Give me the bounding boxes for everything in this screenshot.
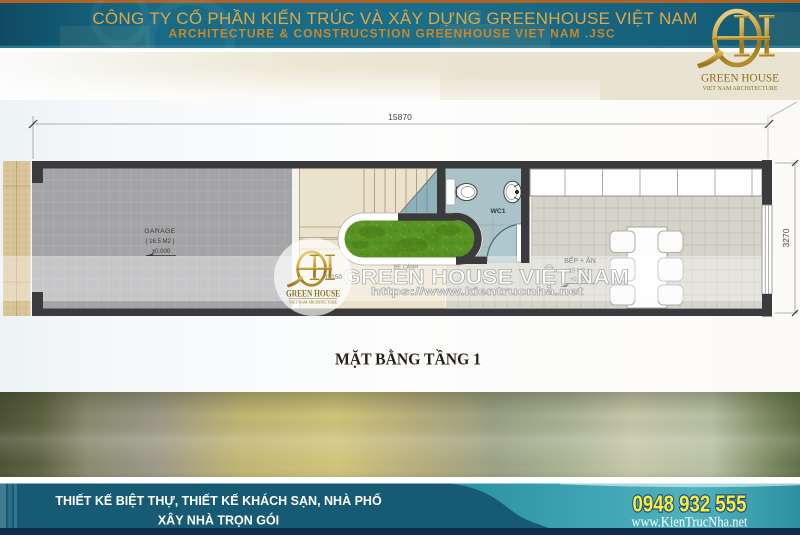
svg-text:3270: 3270 (781, 228, 791, 247)
svg-text:www.KienTrucNha.net: www.KienTrucNha.net (632, 515, 748, 531)
svg-text:15870: 15870 (388, 112, 412, 122)
svg-text:0.150: 0.150 (326, 274, 343, 281)
svg-text:XÂY NHÀ TRỌN GÓI: XÂY NHÀ TRỌN GÓI (158, 513, 279, 528)
svg-text:GARAGE: GARAGE (144, 228, 176, 235)
svg-text:±0.000: ±0.000 (152, 249, 171, 255)
svg-text:MẶT BẰNG TẦNG 1: MẶT BẰNG TẦNG 1 (335, 350, 481, 369)
svg-text:VIET NAM ARCHITECTURE: VIET NAM ARCHITECTURE (703, 85, 778, 92)
svg-text:CÔNG TY CỔ PHẦN KIẾN TRÚC VÀ X: CÔNG TY CỔ PHẦN KIẾN TRÚC VÀ XÂY DỰNG GR… (92, 9, 697, 28)
svg-text:ARCHITECTURE & CONSTRUCSTION G: ARCHITECTURE & CONSTRUCSTION GREENHOUSE … (168, 27, 615, 41)
svg-text:GREEN HOUSE: GREEN HOUSE (701, 73, 779, 85)
svg-text:( 16.5 M2 ): ( 16.5 M2 ) (145, 239, 174, 245)
svg-text:THIẾT KẾ BIỆT THỰ, THIẾT KẾ KH: THIẾT KẾ BIỆT THỰ, THIẾT KẾ KHÁCH SẠN, N… (55, 493, 382, 508)
svg-text:0948 932 555: 0948 932 555 (633, 491, 747, 517)
svg-text:https://www.kientrucnha.net: https://www.kientrucnha.net (371, 286, 583, 298)
svg-text:WC1: WC1 (490, 208, 505, 215)
svg-text:VIET NAM ARCHITECTURE: VIET NAM ARCHITECTURE (289, 300, 337, 305)
svg-text:GREEN HOUSE: GREEN HOUSE (286, 289, 340, 299)
